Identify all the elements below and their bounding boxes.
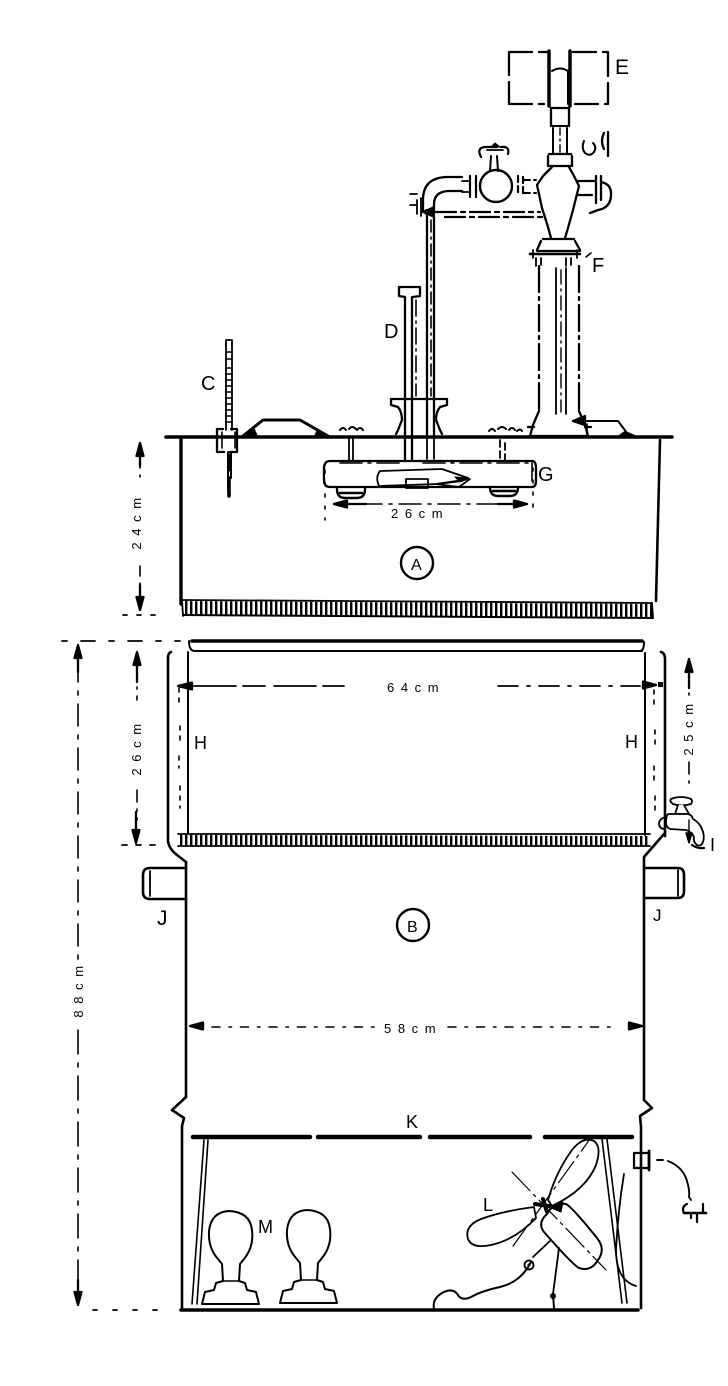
svg-text:E: E [615,56,629,79]
svg-text:H: H [625,732,638,752]
svg-text:D: D [384,321,398,343]
svg-text:I: I [710,835,715,855]
svg-text:5 8 c m: 5 8 c m [384,1021,437,1036]
svg-text:A: A [411,557,422,574]
svg-text:C: C [201,373,215,395]
svg-text:J: J [157,907,168,930]
svg-text:2 6 c m: 2 6 c m [391,506,444,521]
svg-text:M: M [258,1217,273,1237]
svg-text:J: J [653,906,662,925]
svg-text:B: B [407,919,418,936]
svg-text:H: H [194,733,207,753]
svg-text:F: F [592,255,604,277]
svg-text:L: L [483,1195,493,1215]
svg-text:G: G [538,464,554,486]
svg-text:2 5 c m: 2 5 c m [681,702,696,755]
svg-text:8 8 c m: 8 8 c m [71,964,86,1017]
svg-text:2 6 c m: 2 6 c m [129,722,144,775]
svg-text:K: K [406,1112,418,1132]
svg-text:2 4 c m: 2 4 c m [129,496,144,549]
svg-text:6 4 c m: 6 4 c m [387,680,440,695]
